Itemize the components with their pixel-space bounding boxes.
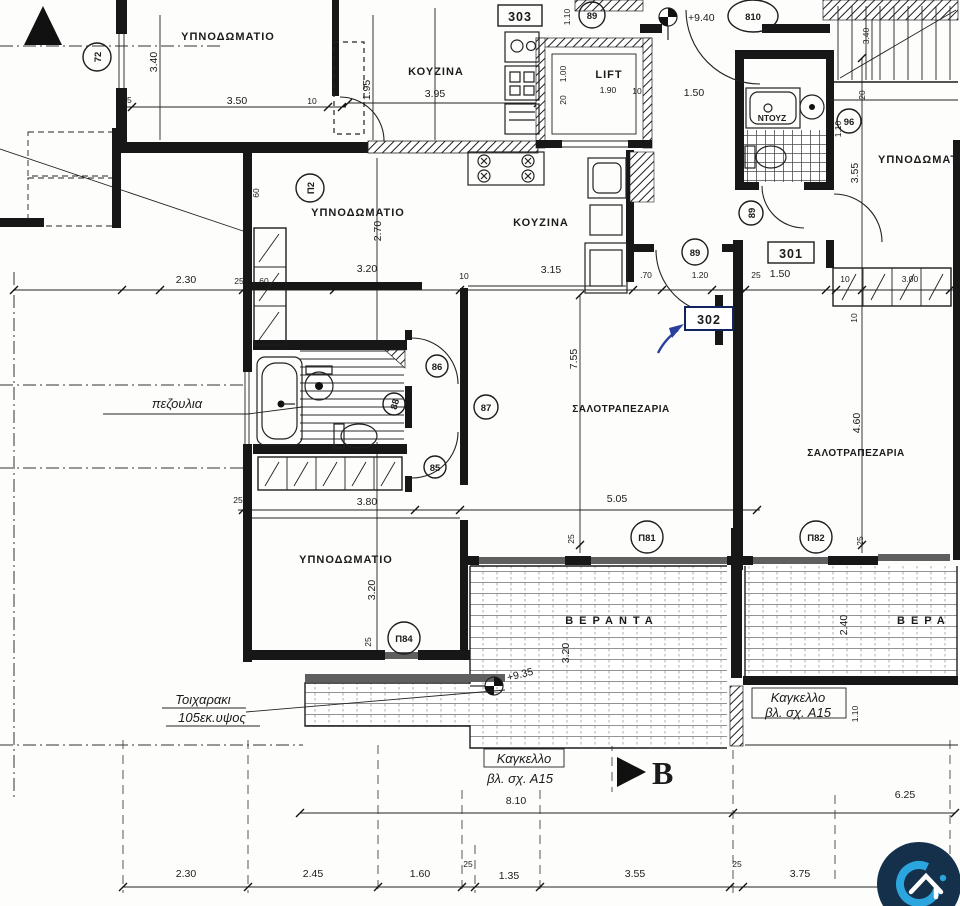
room-label-bedroom-302: ΥΠΝΟΔΩΜΑΤΙΟ (311, 207, 405, 219)
entry-arrow-302 (658, 324, 684, 353)
circle-tag: Π2 (296, 174, 324, 202)
dim-label: 25 (751, 270, 761, 280)
bathtub (257, 357, 302, 445)
dim-label: 3.75 (790, 868, 811, 880)
unit-tag-301: 301 (768, 242, 814, 263)
dim-label: 3.55 (625, 868, 646, 880)
circle-tag: Π82 (800, 521, 832, 553)
dim-label: 2.45 (303, 868, 324, 880)
north-arrow-icon (24, 6, 62, 45)
dim-label: 6.25 (895, 789, 916, 801)
dim-label: 10 (849, 313, 859, 323)
circle-tag: 810 (728, 0, 778, 32)
dim-label: 1.95 (361, 80, 373, 101)
veranda-tiles-302 (470, 566, 727, 746)
svg-text:βλ. σχ. Α15: βλ. σχ. Α15 (764, 705, 832, 720)
note-sill: πεζουλια (152, 396, 203, 411)
level-text-upper: +9.40 (688, 12, 715, 24)
svg-text:89: 89 (747, 208, 758, 219)
room-label-living-302: ΣΑΛΟΤΡΑΠΕΖΑΡΙΑ (572, 404, 670, 415)
room-label-veranda-301: ΒΕΡΑ (897, 615, 951, 627)
dim-label: 10 (632, 86, 642, 96)
dim-label: 25 (566, 534, 576, 544)
washbasin-301 (800, 95, 824, 119)
dim-label: 25 (463, 859, 473, 869)
dim-label: 3.50 (227, 95, 248, 107)
room-label-shower: ΝΤΟΥΖ (758, 113, 786, 123)
logo-circle (877, 842, 960, 906)
dim-label: 25 (363, 637, 373, 647)
dim-label: 1.50 (770, 268, 791, 280)
svg-text:Π2: Π2 (306, 182, 317, 194)
note-low-wall-2: 105εκ.υψος (178, 710, 246, 725)
dim-label: 4.60 (851, 413, 863, 434)
dim-label: 1.20 (692, 270, 709, 280)
dim-label: 3.95 (425, 88, 446, 100)
room-label-living-301: ΣΑΛΟΤΡΑΠΕΖΑΡΙΑ (807, 448, 905, 459)
sill-note-leader (103, 407, 302, 414)
dim-label: 10 (459, 271, 469, 281)
svg-text:βλ. σχ. Α15: βλ. σχ. Α15 (486, 771, 554, 786)
dim-label: 3.20 (366, 580, 378, 601)
dim-label: 3.15 (541, 264, 562, 276)
dim-label: 2.40 (838, 615, 850, 636)
unit-tag-302: 302 (685, 307, 733, 330)
svg-text:Π81: Π81 (638, 533, 656, 544)
svg-text:96: 96 (844, 117, 855, 128)
room-label-bedroom-tl: ΥΠΝΟΔΩΜΑΤΙΟ (181, 31, 275, 43)
dim-label: 1.10 (562, 8, 572, 25)
circle-tag: Π84 (388, 622, 420, 654)
svg-text:Π82: Π82 (807, 533, 824, 544)
logo-dot-icon (940, 875, 946, 881)
dim-label: 25 (732, 859, 742, 869)
dim-label: 1.90 (600, 85, 617, 95)
room-label-lift: LIFT (595, 69, 622, 81)
low-wall (305, 674, 505, 682)
svg-text:Καγκελλο: Καγκελλο (771, 690, 825, 705)
dim-label: 2.30 (176, 274, 197, 286)
dim-label: 3.55 (849, 163, 861, 184)
dim-label: 3.20 (560, 643, 572, 664)
dim-label: 1.35 (499, 870, 520, 882)
dim-label: 2.30 (176, 868, 197, 880)
section-label-b: B (652, 755, 673, 791)
floor-plan-drawing: ΥΠΝΟΔΩΜΑΤΙΟ ΚΟΥΖΙΝΑ LIFT ΝΤΟΥΖ ΥΠΝΟΔΩΜΑΤ… (0, 0, 960, 906)
circle-tag: 72 (83, 43, 111, 71)
circle-tag: 89 (682, 239, 708, 265)
circle-tag: 89 (739, 201, 763, 225)
dim-label: 10 (307, 96, 317, 106)
floor-plan-page: ΥΠΝΟΔΩΜΑΤΙΟ ΚΟΥΖΙΝΑ LIFT ΝΤΟΥΖ ΥΠΝΟΔΩΜΑΤ… (0, 0, 960, 906)
dim-label: 60 (251, 188, 261, 198)
note-railing-302: Καγκελλο βλ. σχ. Α15 (484, 749, 564, 786)
svg-text:86: 86 (432, 362, 443, 373)
dim-label: .70 (640, 270, 652, 280)
dim-label: 3.20 (357, 263, 378, 275)
dim-label: 5.05 (607, 493, 628, 505)
dim-label: 10 (840, 274, 850, 284)
svg-text:301: 301 (779, 247, 803, 261)
dim-label: 3.00 (902, 274, 919, 284)
dim-label: 1.10 (850, 705, 860, 722)
dim-label: 25 (855, 536, 865, 546)
dim-label: 1.60 (410, 868, 431, 880)
dim-label: 1.00 (558, 65, 568, 82)
svg-text:302: 302 (697, 313, 721, 327)
room-label-kitchen-tl: ΚΟΥΖΙΝΑ (408, 66, 464, 78)
dim-label: 3.80 (357, 496, 378, 508)
dim-label: 3.40 (148, 52, 160, 73)
note-low-wall-1: Τοιχαρακι (175, 692, 231, 707)
room-label-kitchen-302: ΚΟΥΖΙΝΑ (513, 217, 569, 229)
home-logo (877, 842, 960, 906)
room-label-veranda-302: ΒΕΡΑΝΤΑ (565, 615, 659, 627)
svg-text:87: 87 (481, 403, 492, 414)
level-marker-upper (659, 8, 677, 40)
dim-label: 3.40 (861, 27, 871, 44)
svg-text:Π84: Π84 (395, 634, 413, 645)
note-railing-301: Καγκελλο βλ. σχ. Α15 (752, 688, 846, 720)
dim-label: 2.70 (372, 221, 384, 242)
section-marker-b-icon (617, 757, 646, 787)
svg-text:303: 303 (508, 10, 532, 24)
dim-label: 60 (259, 276, 269, 286)
wardrobe-302-bath (258, 457, 402, 490)
dim-label: 25 (234, 276, 244, 286)
room-label-bedroom-301: ΥΠΝΟΔΩΜΑΤΙΟ (878, 154, 960, 166)
room-label-bedroom2-302: ΥΠΝΟΔΩΜΑΤΙΟ (299, 554, 393, 566)
svg-text:89: 89 (587, 11, 598, 22)
dim-label: 20 (558, 95, 568, 105)
neighbour-fragment (0, 128, 121, 228)
dim-label: 1.50 (684, 87, 705, 99)
dim-label: 25 (233, 495, 243, 505)
svg-text:72: 72 (93, 52, 104, 63)
bathroom-tiles (300, 350, 404, 442)
circle-tag: Π81 (631, 521, 663, 553)
circle-tag: 87 (474, 395, 498, 419)
dim-label: 7.55 (568, 349, 580, 370)
svg-text:85: 85 (430, 463, 441, 474)
unit-tag-303: 303 (498, 5, 542, 26)
circle-tag: 86 (426, 355, 448, 377)
dim-label: 20 (857, 90, 867, 100)
svg-text:810: 810 (745, 12, 761, 23)
svg-text:Καγκελλο: Καγκελλο (497, 751, 551, 766)
dim-label: 1.10 (833, 120, 843, 137)
svg-text:89: 89 (690, 248, 701, 259)
dim-label: 25 (122, 95, 132, 105)
stove (468, 152, 544, 185)
dim-label: 8.10 (506, 795, 527, 807)
